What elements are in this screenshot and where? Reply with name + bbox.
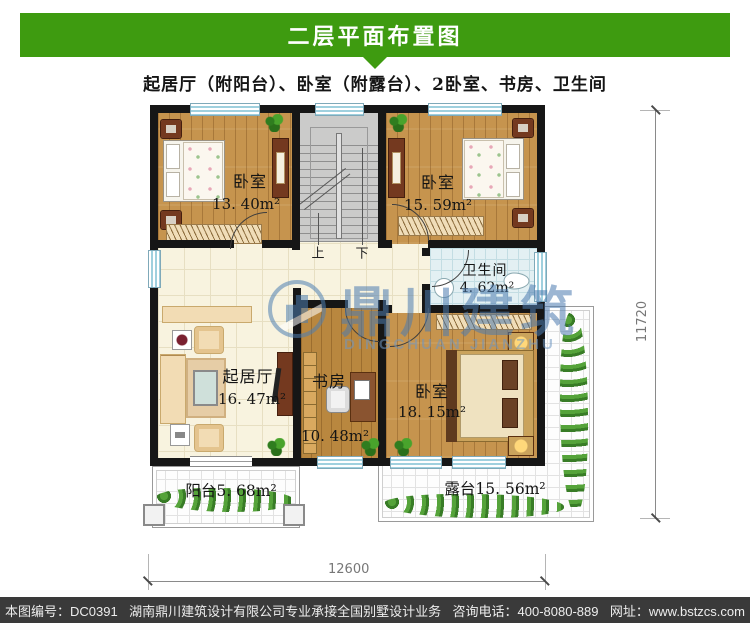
room-label-bedroom-br: 卧室 — [415, 378, 449, 402]
window — [148, 250, 161, 288]
balcony-name: 阳台 — [185, 482, 216, 500]
room-label-terrace: 露台15. 56m² — [444, 477, 545, 499]
room-label-bathroom: 卫生间 — [463, 260, 508, 280]
drawing-number: 本图编号：DC0391 — [5, 601, 118, 620]
plant-icon — [388, 114, 408, 132]
balcony-sliding-door — [190, 456, 252, 467]
balcony-post-right — [283, 504, 305, 526]
room-area-bedroom-tl: 13. 40m² — [212, 195, 280, 213]
window — [317, 456, 363, 469]
room-area-study: 10. 48m² — [301, 427, 369, 445]
window — [390, 456, 442, 469]
window — [315, 103, 364, 116]
room-area-bathroom: 4. 62m² — [460, 280, 515, 296]
window — [452, 456, 506, 469]
plant-icon — [393, 438, 413, 456]
extension-line — [545, 554, 546, 590]
floor-plan: 上 下 — [0, 0, 750, 623]
room-label-study: 书房 — [312, 368, 346, 392]
balcony-area: 5. 68m² — [216, 482, 276, 500]
window — [534, 252, 547, 302]
balcony-post-left — [143, 504, 165, 526]
room-area-living: 16. 47m² — [218, 390, 286, 408]
website-url: 网址：www.bstzcs.com — [610, 601, 745, 620]
room-area-bedroom-tr: 15. 59m² — [404, 196, 472, 214]
room-area-bedroom-br: 18. 15m² — [398, 403, 466, 421]
plant-icon — [266, 438, 286, 456]
room-label-living: 起居厅 — [222, 363, 273, 387]
plant-icon — [264, 114, 284, 132]
room-label-bedroom-tr: 卧室 — [421, 169, 455, 193]
window — [190, 103, 260, 116]
contact-phone: 咨询电话：400-8080-889 — [453, 601, 599, 620]
terrace-area: 15. 56m² — [475, 480, 545, 498]
dimension-line-width — [148, 581, 546, 582]
footer-bar: 本图编号：DC0391 湖南鼎川建筑设计有限公司专业承接全国别墅设计业务 咨询电… — [0, 597, 750, 623]
room-label-bedroom-tl: 卧室 — [233, 168, 267, 192]
dimension-line-depth — [655, 110, 656, 518]
extension-line — [148, 554, 149, 590]
room-label-balcony: 阳台5. 68m² — [185, 479, 276, 501]
dimension-width-value: 12600 — [328, 562, 369, 577]
terrace-name: 露台 — [444, 480, 475, 498]
dimension-depth-value: 11720 — [635, 301, 650, 342]
company-slogan: 湖南鼎川建筑设计有限公司专业承接全国别墅设计业务 — [129, 601, 441, 620]
window — [428, 103, 502, 116]
